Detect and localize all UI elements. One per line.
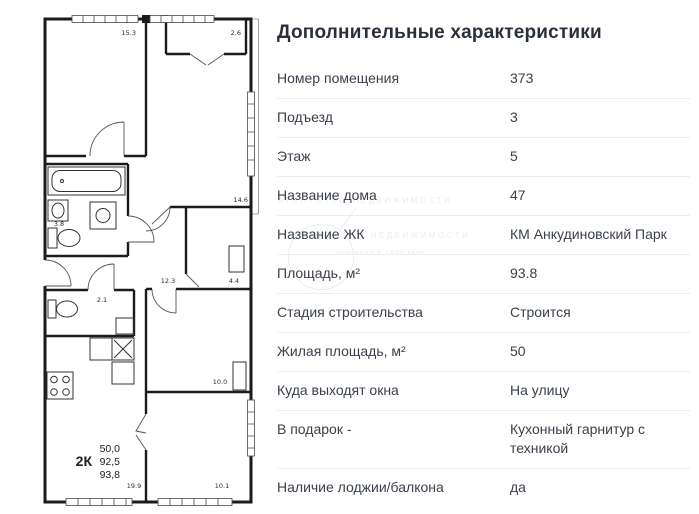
outer-walls bbox=[45, 19, 251, 502]
spec-value: Строится bbox=[510, 303, 690, 322]
room-area-label: 12.3 bbox=[161, 277, 175, 285]
spec-label: Стадия строительства bbox=[277, 303, 510, 322]
spec-value: 5 bbox=[510, 147, 690, 166]
room-area-label: 10.1 bbox=[215, 482, 229, 490]
interior-walls bbox=[45, 15, 251, 502]
spec-value: 3 bbox=[510, 108, 690, 127]
room-area-label: 4.4 bbox=[229, 277, 239, 285]
spec-label: Этаж bbox=[277, 147, 510, 166]
room-area-label: 15.3 bbox=[122, 29, 136, 37]
spec-row-house-name: Название дома 47 bbox=[277, 177, 690, 216]
main-area-value: 92,5 bbox=[100, 456, 121, 468]
section-title: Дополнительные характеристики bbox=[277, 20, 690, 46]
spec-row-construction-stage: Стадия строительства Строится bbox=[277, 294, 690, 333]
spec-label: Куда выходят окна bbox=[277, 381, 510, 400]
spec-value: 373 bbox=[510, 69, 690, 88]
additional-characteristics-panel: Дополнительные характеристики Номер поме… bbox=[277, 20, 690, 507]
doors bbox=[45, 54, 224, 450]
plan-summary: 2К 50,0 92,5 93,8 bbox=[76, 443, 121, 481]
washbasin-icon bbox=[48, 200, 68, 221]
spec-value: 47 bbox=[510, 186, 690, 205]
apartment-type-label: 2К bbox=[76, 453, 93, 469]
spec-value: Кухонный гарнитур с техникой bbox=[510, 420, 690, 458]
wc-sink-icon bbox=[116, 318, 134, 334]
spec-row-room-number: Номер помещения 373 bbox=[277, 60, 690, 99]
spec-row-area: Площадь, м² 93.8 bbox=[277, 255, 690, 294]
spec-row-windows-view: Куда выходят окна На улицу bbox=[277, 372, 690, 411]
washing-machine-icon bbox=[90, 202, 116, 229]
room-area-label: 14.6 bbox=[234, 196, 248, 204]
spec-value: На улицу bbox=[510, 381, 690, 400]
spec-row-complex-name: Название ЖК КМ Анкудиновский Парк bbox=[277, 216, 690, 255]
windows bbox=[66, 16, 255, 506]
spec-row-entrance: Подъезд 3 bbox=[277, 99, 690, 138]
fridge-icon bbox=[112, 362, 134, 384]
spec-value: да bbox=[510, 478, 690, 497]
room-area-label: 3.8 bbox=[54, 220, 64, 228]
spec-label: Жилая площадь, м² bbox=[277, 342, 510, 361]
spec-value: 93.8 bbox=[510, 264, 690, 283]
spec-label: Наличие лоджии/балкона bbox=[277, 478, 510, 497]
floorplan-svg: 15.3 2.6 14.6 3.8 12.3 4.4 2.1 10.0 19.9… bbox=[28, 4, 260, 510]
spec-label: Номер помещения bbox=[277, 69, 510, 88]
kitchen-sink-icon bbox=[90, 338, 134, 360]
spec-value: КМ Анкудиновский Парк bbox=[510, 225, 690, 244]
living-area-value: 50,0 bbox=[100, 443, 121, 455]
spec-row-floor: Этаж 5 bbox=[277, 138, 690, 177]
spec-row-balcony: Наличие лоджии/балкона да bbox=[277, 469, 690, 507]
room-area-label: 10.0 bbox=[213, 378, 227, 386]
room-area-label: 19.9 bbox=[127, 482, 141, 490]
spec-row-living-area: Жилая площадь, м² 50 bbox=[277, 333, 690, 372]
spec-label: Название ЖК bbox=[277, 225, 510, 244]
spec-label: В подарок - bbox=[277, 420, 510, 439]
shafts bbox=[229, 246, 246, 390]
room-area-label: 2.1 bbox=[97, 296, 107, 304]
entry-gap bbox=[43, 260, 48, 286]
floorplan-image: 15.3 2.6 14.6 3.8 12.3 4.4 2.1 10.0 19.9… bbox=[28, 4, 260, 510]
bathtub-icon bbox=[48, 167, 125, 195]
spec-label: Площадь, м² bbox=[277, 264, 510, 283]
spec-label: Подъезд bbox=[277, 108, 510, 127]
spec-value: 50 bbox=[510, 342, 690, 361]
total-area-value: 93,8 bbox=[100, 469, 121, 481]
spec-row-gift: В подарок - Кухонный гарнитур с техникой bbox=[277, 411, 690, 469]
toilet-icon bbox=[48, 228, 80, 248]
toilet-icon bbox=[48, 300, 78, 318]
spec-label: Название дома bbox=[277, 186, 510, 205]
room-area-label: 2.6 bbox=[231, 29, 241, 37]
stove-icon bbox=[47, 372, 73, 399]
